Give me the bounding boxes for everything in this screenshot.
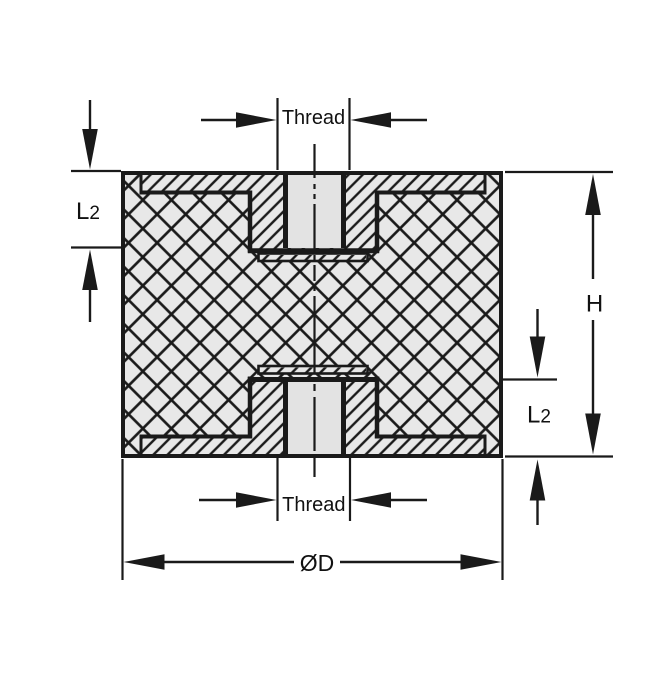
svg-text:Thread: Thread bbox=[282, 107, 345, 129]
svg-text:H: H bbox=[586, 291, 603, 318]
svg-text:L2: L2 bbox=[527, 402, 551, 429]
svg-text:ØD: ØD bbox=[300, 550, 335, 576]
svg-text:L2: L2 bbox=[76, 198, 100, 225]
svg-text:Thread: Thread bbox=[282, 494, 345, 516]
